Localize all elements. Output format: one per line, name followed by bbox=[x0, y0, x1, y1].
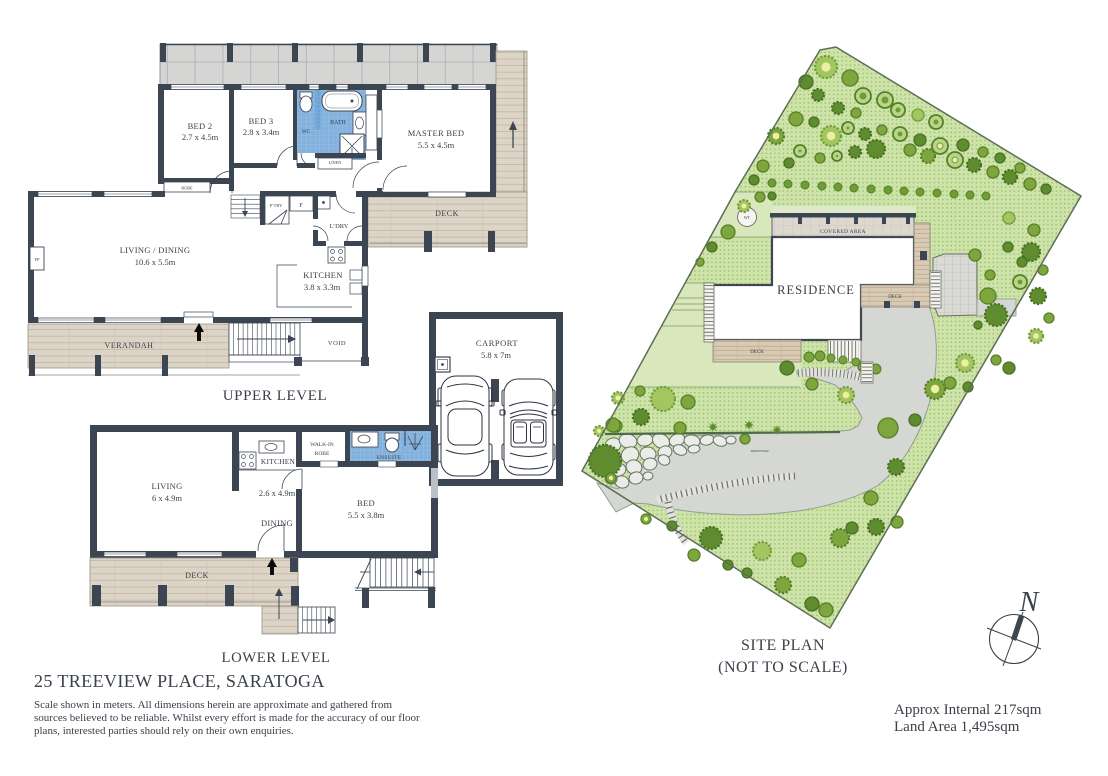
svg-text:UPPER LEVEL: UPPER LEVEL bbox=[223, 388, 328, 404]
svg-text:RESIDENCE: RESIDENCE bbox=[777, 283, 855, 297]
svg-text:Scale shown in meters. All dim: Scale shown in meters. All dimensions he… bbox=[34, 699, 392, 711]
svg-text:BED 3: BED 3 bbox=[249, 116, 274, 126]
svg-text:DECK: DECK bbox=[185, 571, 209, 580]
svg-text:WALK-IN: WALK-IN bbox=[310, 442, 334, 448]
svg-text:DINING: DINING bbox=[261, 518, 293, 528]
svg-text:VOID: VOID bbox=[328, 340, 346, 347]
svg-text:VERANDAH: VERANDAH bbox=[105, 341, 154, 350]
svg-text:2.7 x 4.5m: 2.7 x 4.5m bbox=[182, 132, 219, 142]
svg-text:MASTER BED: MASTER BED bbox=[408, 128, 465, 138]
svg-text:5.8 x 7m: 5.8 x 7m bbox=[481, 350, 511, 360]
svg-text:L’DRY: L’DRY bbox=[330, 223, 349, 230]
svg-text:sources believed to be reliab: sources believed to be reliable. Whilst … bbox=[34, 712, 420, 724]
svg-text:DECK: DECK bbox=[888, 295, 902, 300]
svg-text:N: N bbox=[1019, 587, 1040, 618]
svg-text:BED 2: BED 2 bbox=[188, 121, 213, 131]
svg-text:ROBE: ROBE bbox=[315, 451, 330, 457]
svg-text:WC: WC bbox=[302, 129, 311, 135]
svg-text:CARPORT: CARPORT bbox=[476, 338, 519, 348]
svg-text:plans, interested parties shou: plans, interested parties should rely on… bbox=[34, 725, 294, 737]
svg-text:BATH: BATH bbox=[330, 120, 346, 126]
svg-text:5.5 x 3.8m: 5.5 x 3.8m bbox=[348, 510, 385, 520]
svg-text:25 TREEVIEW PLACE, SARATOGA: 25 TREEVIEW PLACE, SARATOGA bbox=[34, 671, 325, 691]
svg-text:DECK: DECK bbox=[750, 350, 764, 355]
svg-text:5.5 x 4.5m: 5.5 x 4.5m bbox=[418, 140, 455, 150]
svg-text:LIVING / DINING: LIVING / DINING bbox=[120, 245, 191, 255]
svg-text:ENSUITE: ENSUITE bbox=[376, 455, 401, 461]
svg-text:3.8 x 3.3m: 3.8 x 3.3m bbox=[304, 282, 341, 292]
svg-text:KITCHEN: KITCHEN bbox=[303, 270, 342, 280]
svg-text:DECK: DECK bbox=[435, 209, 459, 218]
svg-text:ROBE: ROBE bbox=[181, 186, 193, 191]
svg-text:DRIVEWAY: DRIVEWAY bbox=[751, 449, 770, 453]
svg-text:SITE PLAN: SITE PLAN bbox=[741, 637, 825, 654]
svg-text:P’TRY: P’TRY bbox=[270, 203, 284, 208]
svg-text:BED: BED bbox=[357, 498, 375, 508]
svg-text:WT: WT bbox=[744, 215, 751, 220]
svg-text:2.6 x 4.9m: 2.6 x 4.9m bbox=[259, 488, 296, 498]
svg-text:2.8 x 3.4m: 2.8 x 3.4m bbox=[243, 127, 280, 137]
svg-text:FP: FP bbox=[34, 257, 40, 262]
svg-text:LINEN: LINEN bbox=[329, 160, 342, 165]
svg-text:LOWER LEVEL: LOWER LEVEL bbox=[222, 650, 331, 666]
svg-text:LIVING: LIVING bbox=[151, 481, 182, 491]
svg-text:Approx Internal 217sqm: Approx Internal 217sqm bbox=[894, 702, 1042, 718]
svg-text:(NOT TO SCALE): (NOT TO SCALE) bbox=[718, 659, 848, 676]
svg-text:10.6 x 5.5m: 10.6 x 5.5m bbox=[135, 257, 176, 267]
svg-text:Land Area 1,495sqm: Land Area 1,495sqm bbox=[894, 719, 1020, 735]
svg-text:KITCHEN: KITCHEN bbox=[261, 457, 296, 466]
svg-text:6 x 4.9m: 6 x 4.9m bbox=[152, 493, 182, 503]
svg-text:COVERED AREA: COVERED AREA bbox=[820, 229, 866, 235]
